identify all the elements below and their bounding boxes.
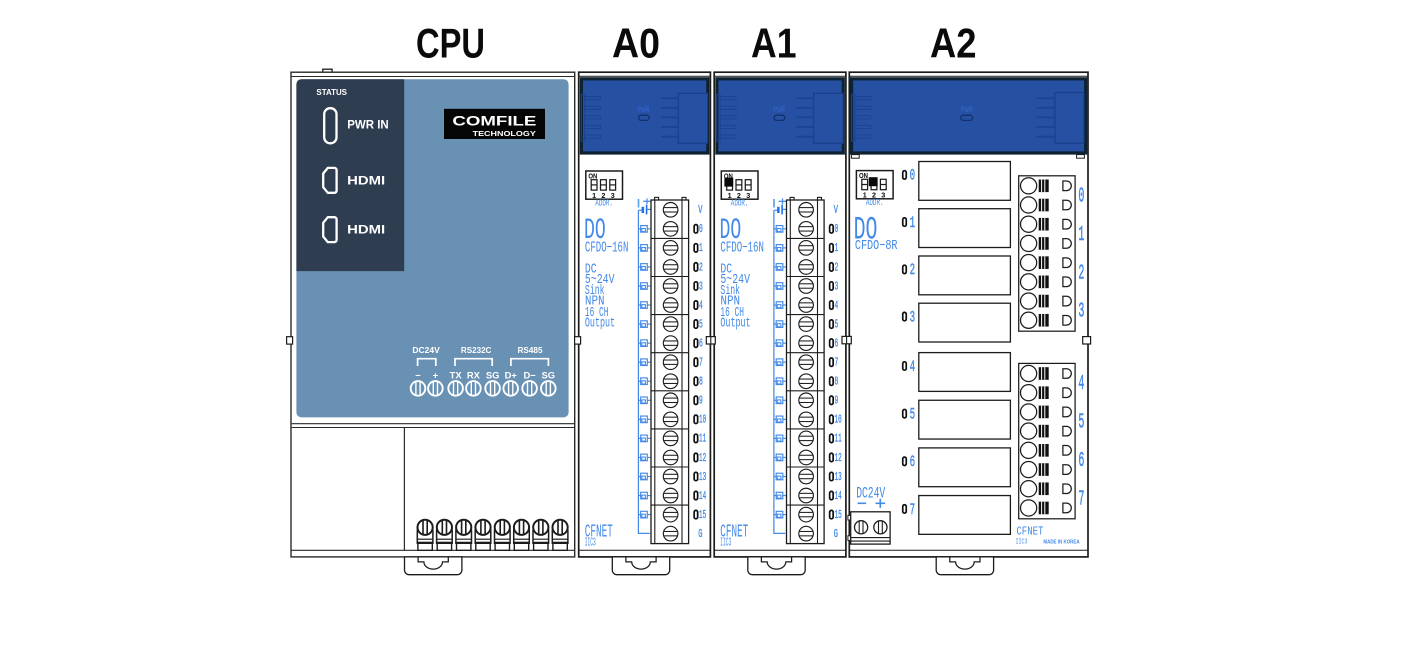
svg-text:9: 9 bbox=[835, 395, 839, 408]
svg-text:DC24V: DC24V bbox=[412, 345, 440, 355]
svg-text:Output: Output bbox=[720, 316, 750, 332]
svg-text:D−: D− bbox=[523, 369, 536, 380]
svg-text:1: 1 bbox=[910, 214, 916, 232]
svg-text:ADDR.: ADDR. bbox=[866, 197, 884, 208]
svg-text:A1: A1 bbox=[751, 19, 797, 66]
svg-text:15: 15 bbox=[835, 509, 842, 522]
svg-text:7: 7 bbox=[835, 357, 839, 370]
svg-text:1: 1 bbox=[699, 242, 703, 255]
svg-text:PWR: PWR bbox=[961, 106, 973, 115]
svg-text:4: 4 bbox=[1078, 373, 1084, 396]
svg-text:+: + bbox=[433, 369, 439, 380]
svg-text:7: 7 bbox=[1078, 488, 1084, 511]
svg-text:PWR: PWR bbox=[638, 106, 650, 115]
svg-text:A2: A2 bbox=[930, 19, 977, 66]
svg-text:10: 10 bbox=[835, 414, 842, 427]
svg-text:13: 13 bbox=[699, 471, 706, 484]
svg-text:12: 12 bbox=[835, 452, 842, 465]
svg-text:PWR: PWR bbox=[773, 106, 785, 115]
svg-text:5: 5 bbox=[910, 405, 916, 423]
svg-text:3: 3 bbox=[910, 308, 916, 326]
svg-text:PWR IN: PWR IN bbox=[347, 120, 389, 132]
svg-text:0: 0 bbox=[699, 223, 703, 236]
svg-text:14: 14 bbox=[699, 490, 706, 503]
svg-text:RX: RX bbox=[467, 369, 481, 380]
svg-text:6: 6 bbox=[835, 337, 839, 350]
svg-text:3: 3 bbox=[699, 280, 703, 293]
svg-text:CFDO−16N: CFDO−16N bbox=[585, 240, 629, 257]
svg-text:11: 11 bbox=[835, 433, 842, 446]
svg-text:RS232C: RS232C bbox=[461, 345, 492, 355]
svg-text:G: G bbox=[698, 528, 702, 541]
svg-text:3: 3 bbox=[835, 280, 839, 293]
svg-text:4: 4 bbox=[910, 358, 916, 376]
svg-text:8: 8 bbox=[699, 376, 703, 389]
svg-text:A0: A0 bbox=[612, 19, 660, 66]
svg-text:2: 2 bbox=[910, 261, 916, 279]
svg-text:IIC3: IIC3 bbox=[1016, 538, 1028, 546]
svg-text:8: 8 bbox=[835, 376, 839, 389]
svg-text:10: 10 bbox=[699, 414, 706, 427]
svg-text:COMFILE: COMFILE bbox=[452, 113, 536, 129]
svg-text:5: 5 bbox=[699, 318, 703, 331]
svg-text:6: 6 bbox=[699, 337, 703, 350]
svg-text:SG: SG bbox=[486, 369, 500, 380]
svg-text:6: 6 bbox=[1078, 450, 1084, 473]
svg-text:7: 7 bbox=[699, 357, 703, 370]
svg-text:HDMI: HDMI bbox=[347, 225, 385, 237]
svg-text:HDMI: HDMI bbox=[347, 175, 385, 187]
svg-text:V: V bbox=[834, 204, 838, 217]
svg-text:IIC3: IIC3 bbox=[720, 536, 731, 549]
svg-text:ADDR.: ADDR. bbox=[731, 197, 749, 208]
svg-text:14: 14 bbox=[835, 490, 842, 503]
svg-text:5: 5 bbox=[835, 318, 839, 331]
svg-text:4: 4 bbox=[835, 299, 839, 312]
svg-text:DC24V: DC24V bbox=[856, 485, 885, 503]
svg-text:13: 13 bbox=[835, 471, 842, 484]
svg-text:11: 11 bbox=[699, 433, 706, 446]
svg-text:15: 15 bbox=[699, 509, 706, 522]
svg-text:3: 3 bbox=[1078, 301, 1084, 324]
svg-text:1: 1 bbox=[1078, 224, 1084, 247]
svg-text:D+: D+ bbox=[505, 369, 518, 380]
svg-text:ADDR.: ADDR. bbox=[595, 197, 613, 208]
svg-text:SG: SG bbox=[542, 369, 556, 380]
svg-text:−: − bbox=[415, 369, 421, 380]
svg-text:2: 2 bbox=[699, 261, 703, 274]
svg-text:CFDO−8R: CFDO−8R bbox=[855, 239, 898, 254]
svg-text:CFNET: CFNET bbox=[1016, 524, 1043, 538]
svg-text:Output: Output bbox=[585, 316, 615, 332]
svg-text:V: V bbox=[698, 204, 702, 217]
svg-text:5: 5 bbox=[1078, 412, 1084, 435]
svg-text:9: 9 bbox=[699, 395, 703, 408]
svg-text:1: 1 bbox=[835, 242, 839, 255]
svg-text:0: 0 bbox=[910, 167, 916, 185]
svg-text:CPU: CPU bbox=[416, 19, 485, 66]
svg-text:0: 0 bbox=[1078, 185, 1084, 208]
svg-text:4: 4 bbox=[699, 299, 703, 312]
svg-text:6: 6 bbox=[910, 453, 916, 471]
svg-text:MADE IN KOREA: MADE IN KOREA bbox=[1043, 540, 1079, 546]
svg-text:G: G bbox=[834, 528, 838, 541]
svg-text:TX: TX bbox=[450, 369, 463, 380]
svg-text:TECHNOLOGY: TECHNOLOGY bbox=[473, 129, 536, 138]
svg-text:12: 12 bbox=[699, 452, 706, 465]
svg-text:0: 0 bbox=[835, 223, 839, 236]
svg-text:2: 2 bbox=[835, 261, 839, 274]
svg-text:IIC3: IIC3 bbox=[585, 536, 596, 549]
svg-text:CFDO−16N: CFDO−16N bbox=[720, 240, 764, 257]
svg-text:7: 7 bbox=[910, 501, 916, 519]
svg-text:RS485: RS485 bbox=[518, 345, 543, 355]
svg-text:STATUS: STATUS bbox=[316, 87, 347, 97]
svg-text:2: 2 bbox=[1078, 262, 1084, 285]
